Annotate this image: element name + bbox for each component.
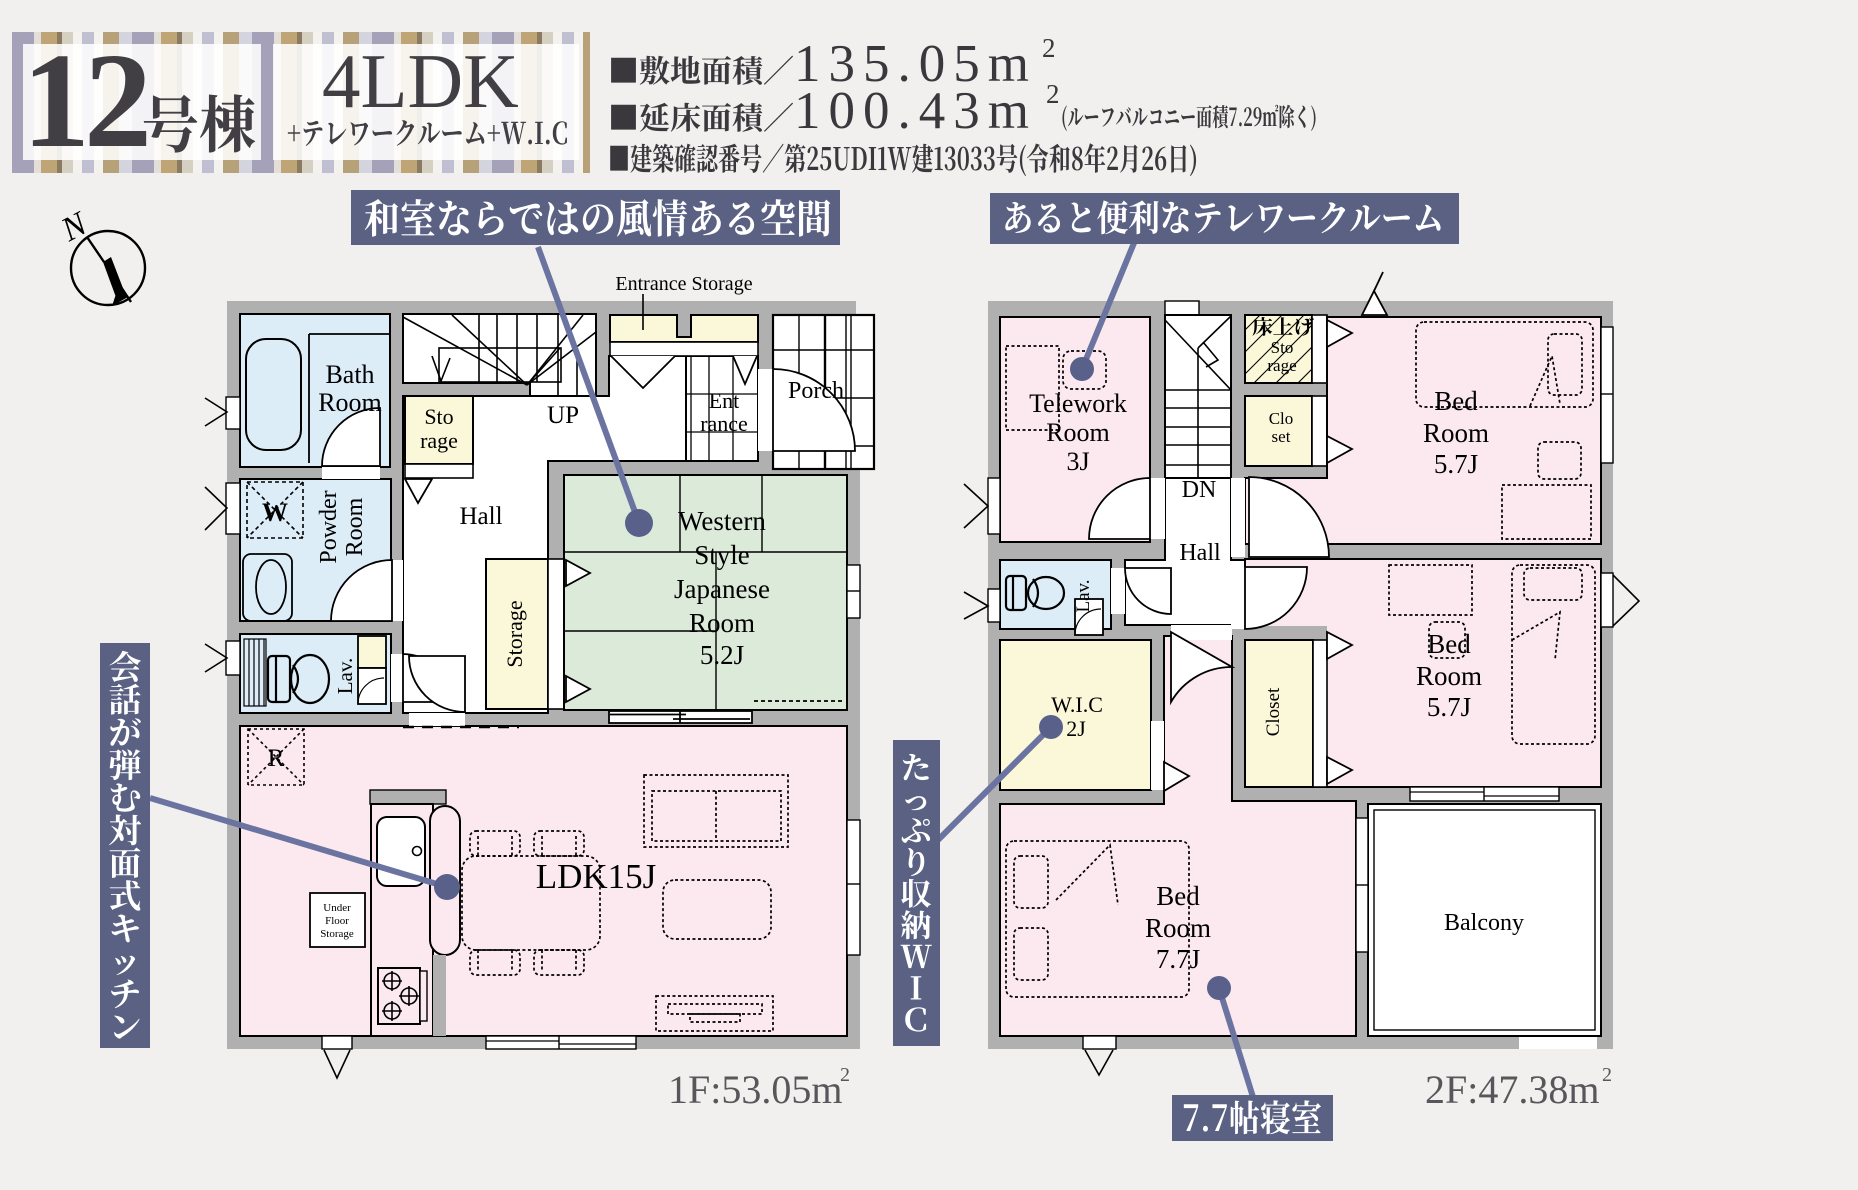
svg-text:W.I.C: W.I.C [1051,692,1103,717]
svg-text:set: set [1272,427,1291,446]
svg-text:Balcony: Balcony [1444,910,1524,936]
svg-text:LDK15J: LDK15J [536,857,657,896]
svg-text:Entrance Storage: Entrance Storage [615,273,752,295]
svg-text:DN: DN [1182,477,1217,503]
svg-text:2: 2 [1602,1064,1612,1086]
svg-text:Style: Style [694,540,750,570]
svg-text:5.7J: 5.7J [1427,692,1471,722]
svg-text:4LDK: 4LDK [322,38,519,124]
svg-text:Bed: Bed [1156,881,1200,911]
svg-text:Under: Under [323,902,351,914]
svg-text:2: 2 [840,1064,850,1086]
svg-text:3J: 3J [1066,447,1089,476]
svg-text:Porch: Porch [788,378,844,404]
svg-text:Lav.: Lav. [333,658,357,695]
svg-text:Closet: Closet [1263,687,1284,736]
svg-text:2: 2 [1042,33,1056,63]
svg-text:Storage: Storage [502,600,527,667]
svg-text:rage: rage [420,428,458,453]
svg-text:Telework: Telework [1029,389,1127,418]
svg-text:Ent: Ent [709,388,740,413]
svg-text:Bed: Bed [1427,629,1471,659]
svg-text:Powder: Powder [316,490,342,563]
svg-text:R: R [268,745,285,772]
svg-text:Room: Room [318,388,382,417]
svg-text:5.2J: 5.2J [700,640,744,670]
svg-text:Hall: Hall [1179,540,1221,566]
svg-text:1F:53.05m: 1F:53.05m [668,1067,842,1112]
svg-text:Room: Room [1145,913,1211,943]
svg-text:UP: UP [547,402,579,429]
svg-text:Room: Room [342,497,368,556]
svg-text:Storage: Storage [320,928,354,940]
svg-text:Sto: Sto [424,404,453,429]
svg-text:Clo: Clo [1269,409,1294,428]
svg-text:Hall: Hall [459,503,502,530]
svg-text:Room: Room [1423,418,1489,448]
svg-text:Lav.: Lav. [1073,579,1094,612]
svg-text:100.43m: 100.43m [794,82,1037,140]
svg-text:Floor: Floor [325,915,349,927]
svg-text:rance: rance [700,411,748,436]
svg-text:rage: rage [1267,356,1296,375]
svg-text:2J: 2J [1066,716,1086,741]
svg-text:Bath: Bath [325,360,374,389]
svg-text:Room: Room [1416,661,1482,691]
svg-text:Western: Western [678,506,766,536]
svg-text:Room: Room [689,608,755,638]
svg-text:Room: Room [1046,418,1110,447]
svg-text:W: W [262,498,288,527]
svg-text:Sto: Sto [1271,338,1294,357]
svg-text:7.7J: 7.7J [1156,944,1200,974]
svg-text:5.7J: 5.7J [1434,449,1478,479]
svg-text:2: 2 [1046,79,1060,109]
svg-text:2F:47.38m: 2F:47.38m [1425,1067,1599,1112]
svg-text:Bed: Bed [1434,386,1478,416]
svg-text:12: 12 [22,26,147,176]
svg-text:Japanese: Japanese [674,574,770,604]
